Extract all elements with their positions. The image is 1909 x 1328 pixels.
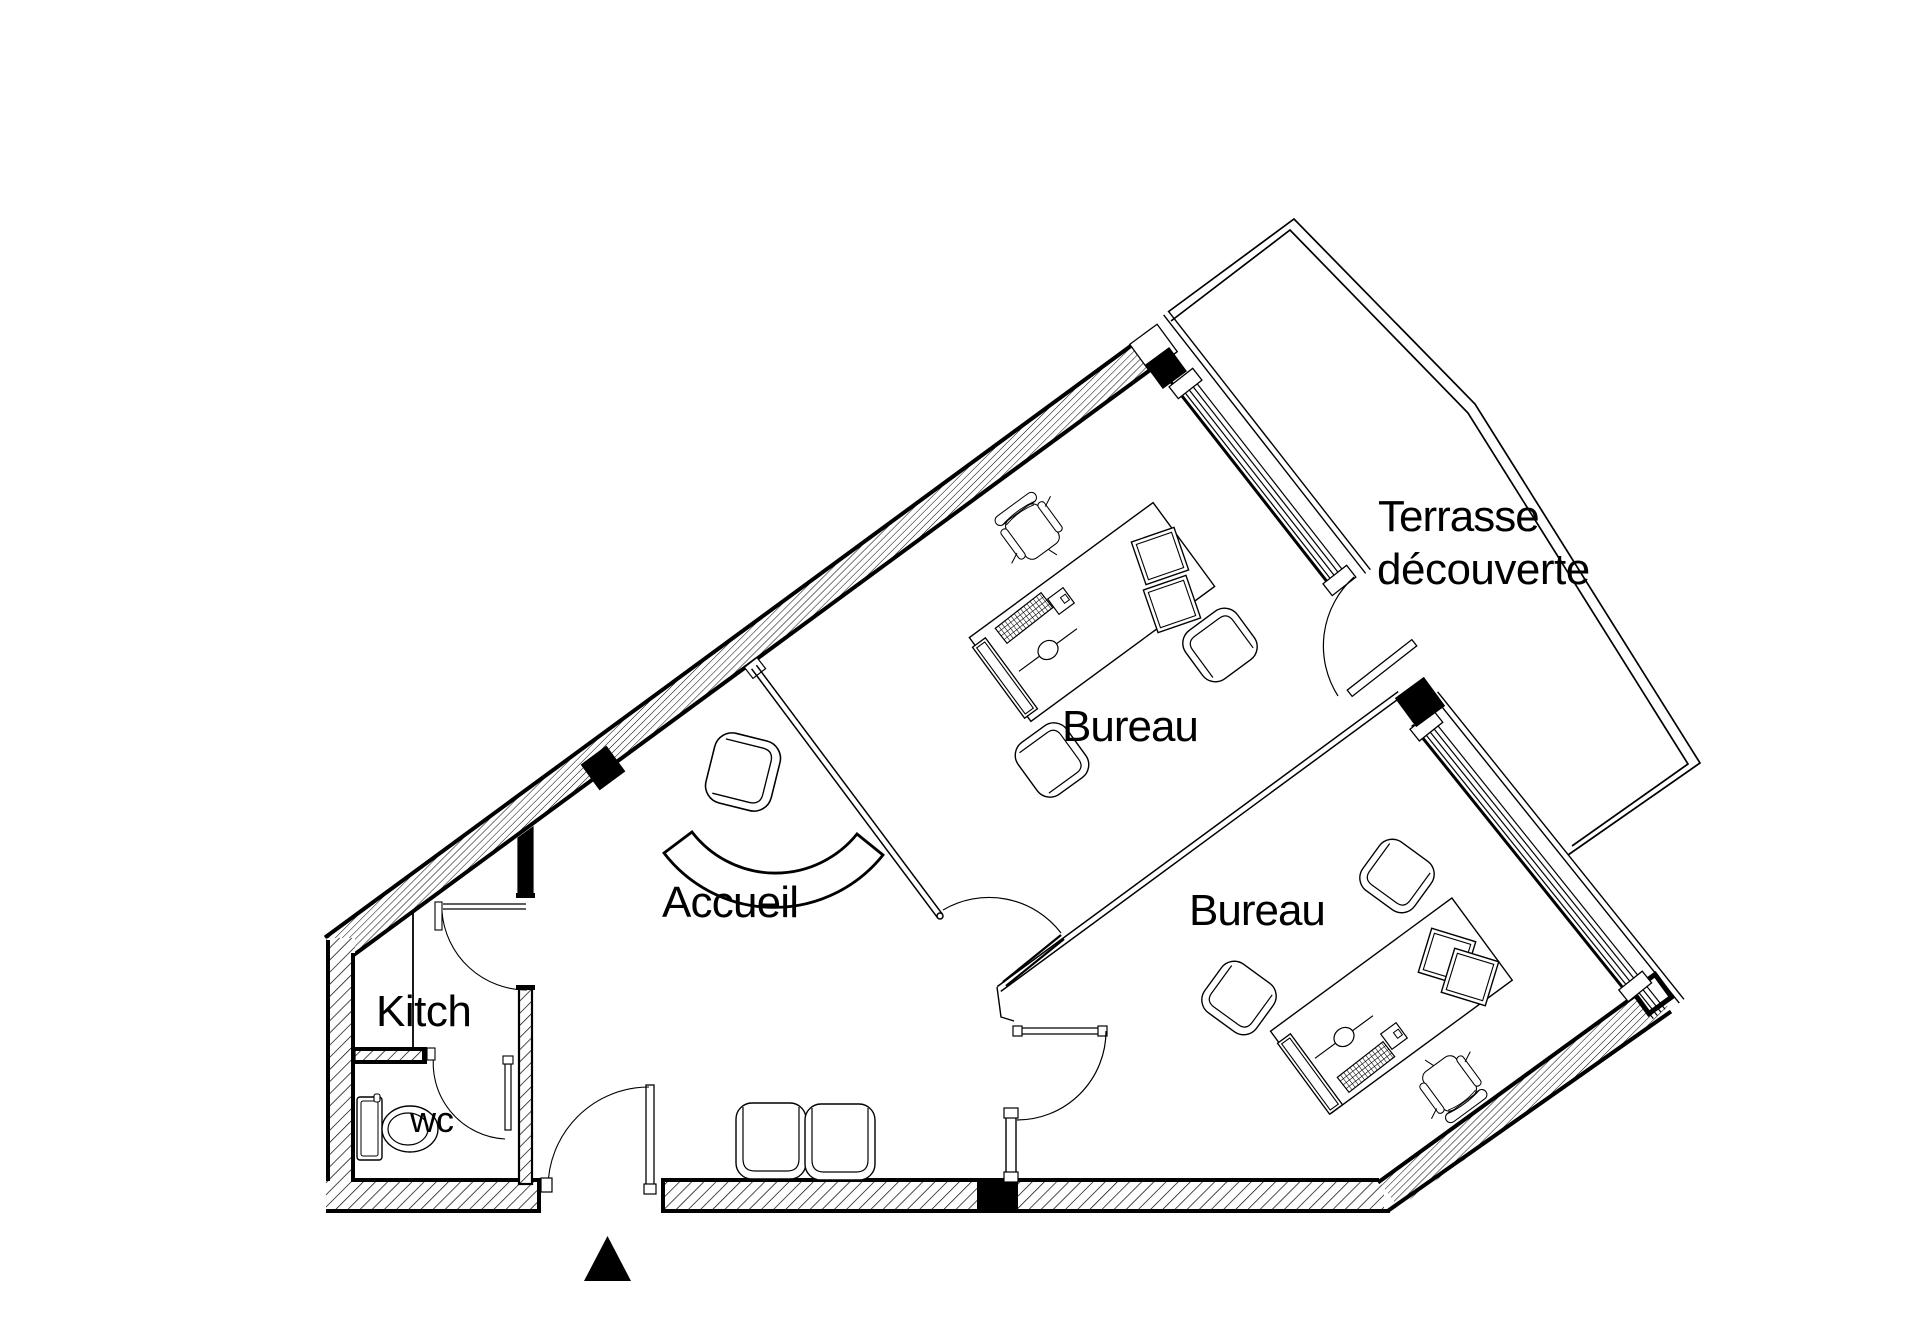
svg-text:Bureau: Bureau [1189,886,1325,935]
svg-text:Bureau: Bureau [1062,702,1198,751]
svg-text:wc: wc [409,1099,454,1140]
svg-text:Terrasse: Terrasse [1378,492,1539,541]
svg-text:Kitch: Kitch [376,987,471,1036]
svg-text:découverte: découverte [1377,545,1590,594]
svg-text:Accueil: Accueil [662,878,798,927]
